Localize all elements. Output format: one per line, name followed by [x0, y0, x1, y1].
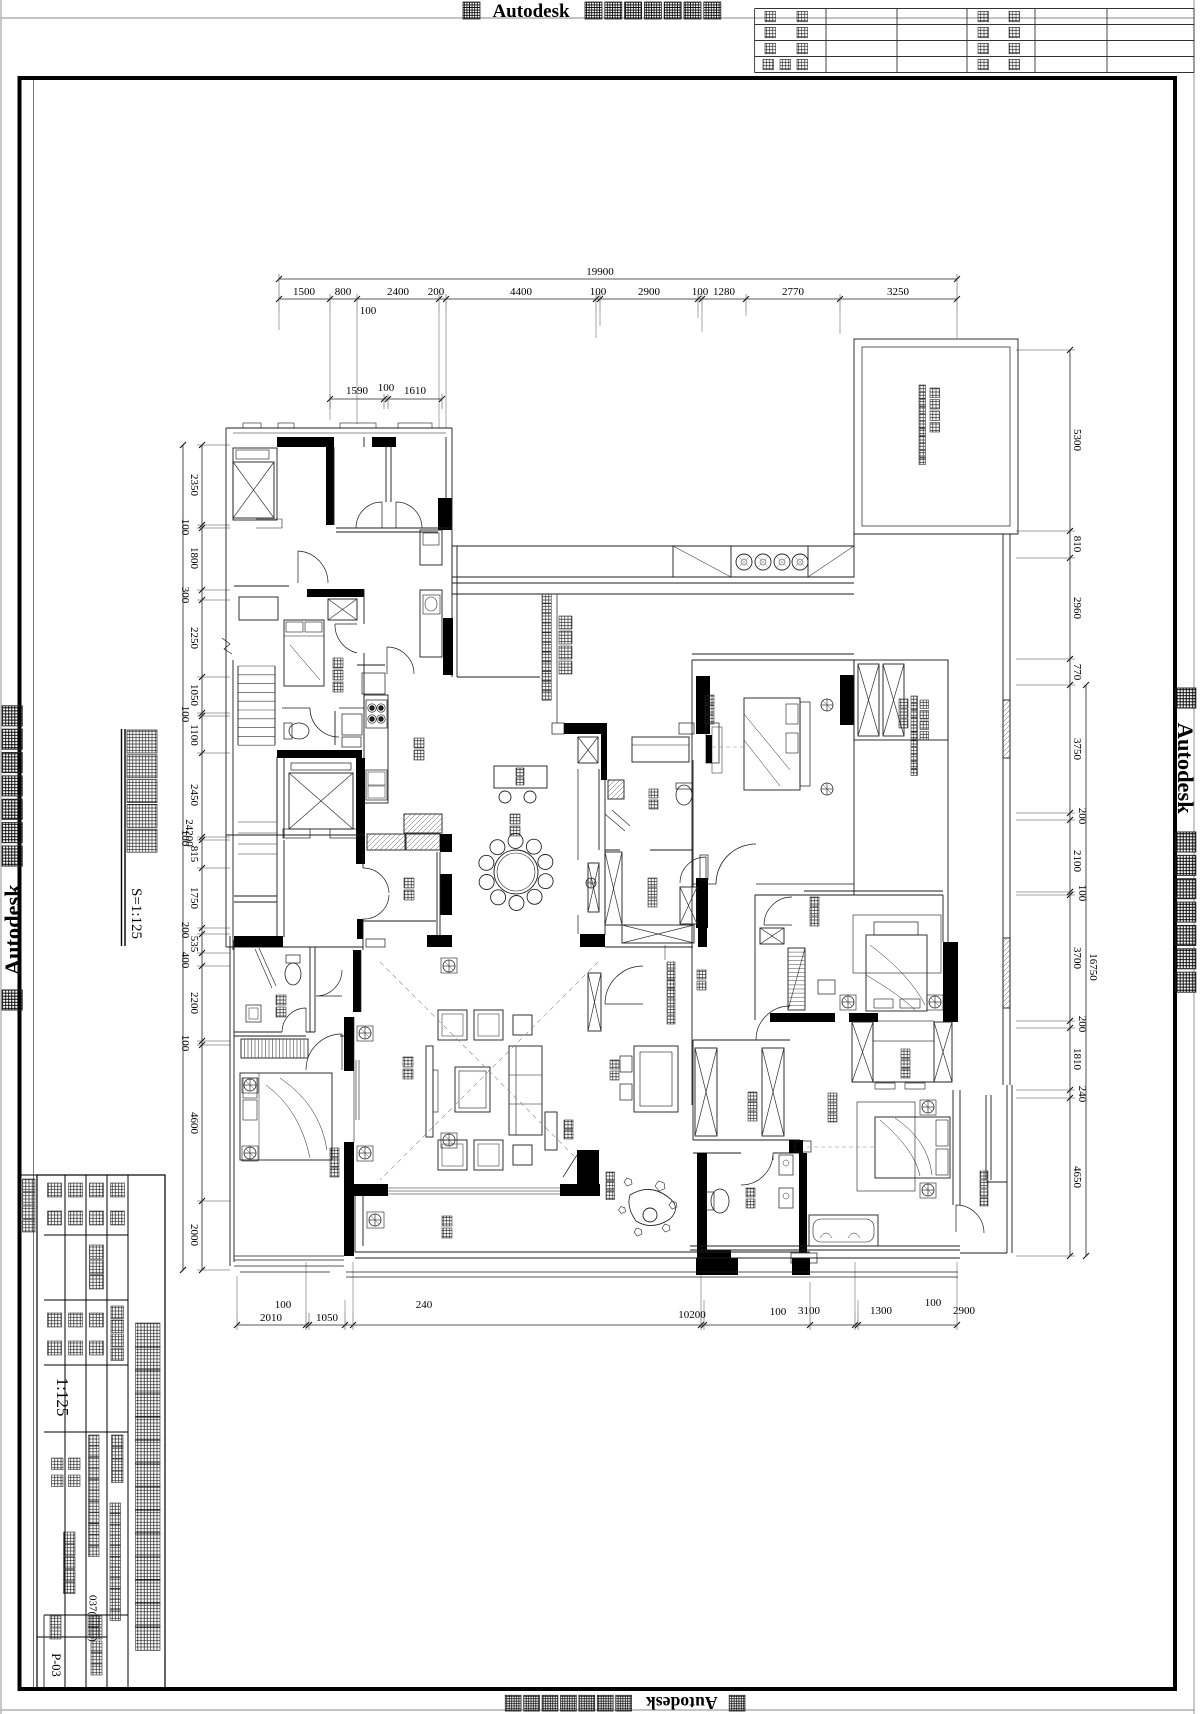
- svg-text:2400: 2400: [387, 286, 410, 298]
- svg-text:2900: 2900: [638, 286, 661, 298]
- svg-text:1810: 1810: [1071, 1048, 1083, 1071]
- svg-text:1050: 1050: [316, 1312, 339, 1324]
- svg-text:2770: 2770: [782, 286, 805, 298]
- svg-text:400: 400: [179, 952, 191, 969]
- svg-text:2900: 2900: [953, 1305, 976, 1317]
- svg-text:4600: 4600: [188, 1112, 200, 1135]
- svg-text:2010: 2010: [260, 1312, 283, 1324]
- svg-text:100: 100: [360, 305, 377, 317]
- svg-text:100: 100: [179, 519, 191, 536]
- svg-text:2200: 2200: [188, 992, 200, 1015]
- svg-text:1280: 1280: [713, 286, 736, 298]
- svg-text:1590: 1590: [346, 385, 369, 397]
- svg-text:100: 100: [179, 1035, 191, 1052]
- svg-text:100: 100: [770, 1306, 787, 1318]
- svg-text:2960: 2960: [1071, 597, 1083, 620]
- svg-text:1300: 1300: [870, 1305, 893, 1317]
- svg-text:1050: 1050: [188, 684, 200, 707]
- svg-text:2250: 2250: [188, 627, 200, 650]
- svg-text:815: 815: [188, 846, 200, 863]
- svg-text:4650: 4650: [1071, 1166, 1083, 1189]
- svg-text:3700: 3700: [1071, 947, 1083, 970]
- svg-text:2100: 2100: [1071, 850, 1083, 873]
- svg-text:3750: 3750: [1071, 738, 1083, 761]
- svg-text:100: 100: [925, 1297, 942, 1309]
- svg-text:770: 770: [1071, 664, 1083, 681]
- svg-text:Autodesk: Autodesk: [0, 884, 25, 975]
- svg-text:100: 100: [692, 286, 709, 298]
- svg-text:800: 800: [335, 286, 352, 298]
- svg-text:5300: 5300: [1071, 429, 1083, 452]
- svg-text:3250: 3250: [887, 286, 910, 298]
- svg-text:1:125: 1:125: [53, 1378, 72, 1417]
- svg-text:S=1:125: S=1:125: [128, 888, 144, 939]
- svg-text:1800: 1800: [188, 547, 200, 570]
- svg-text:1500: 1500: [293, 286, 316, 298]
- svg-text:19900: 19900: [586, 266, 614, 278]
- svg-text:535: 535: [188, 936, 200, 953]
- svg-text:Autodesk: Autodesk: [1173, 723, 1198, 814]
- svg-text:24200: 24200: [183, 819, 195, 847]
- svg-text:100: 100: [590, 286, 607, 298]
- svg-text:810: 810: [1071, 536, 1083, 553]
- svg-text:1610: 1610: [404, 385, 427, 397]
- svg-text:100: 100: [275, 1299, 292, 1311]
- svg-text:P-03: P-03: [49, 1653, 63, 1677]
- svg-text:1100: 1100: [188, 724, 200, 746]
- svg-text:4400: 4400: [510, 286, 533, 298]
- svg-text:1750: 1750: [188, 887, 200, 910]
- svg-text:100: 100: [378, 382, 395, 394]
- svg-text:2450: 2450: [188, 784, 200, 807]
- svg-text:2000: 2000: [188, 1224, 200, 1247]
- svg-text:200: 200: [428, 286, 445, 298]
- svg-text:300: 300: [179, 587, 191, 604]
- svg-text:10200: 10200: [678, 1309, 706, 1321]
- svg-text:Autodesk: Autodesk: [646, 1693, 718, 1713]
- svg-text:240: 240: [416, 1299, 433, 1311]
- svg-text:3100: 3100: [798, 1305, 821, 1317]
- svg-text:100: 100: [179, 706, 191, 723]
- svg-text:16750: 16750: [1087, 953, 1099, 981]
- svg-text:037(: 037(: [87, 1595, 99, 1616]
- svg-text:2350: 2350: [188, 474, 200, 497]
- svg-text:Autodesk: Autodesk: [492, 1, 570, 22]
